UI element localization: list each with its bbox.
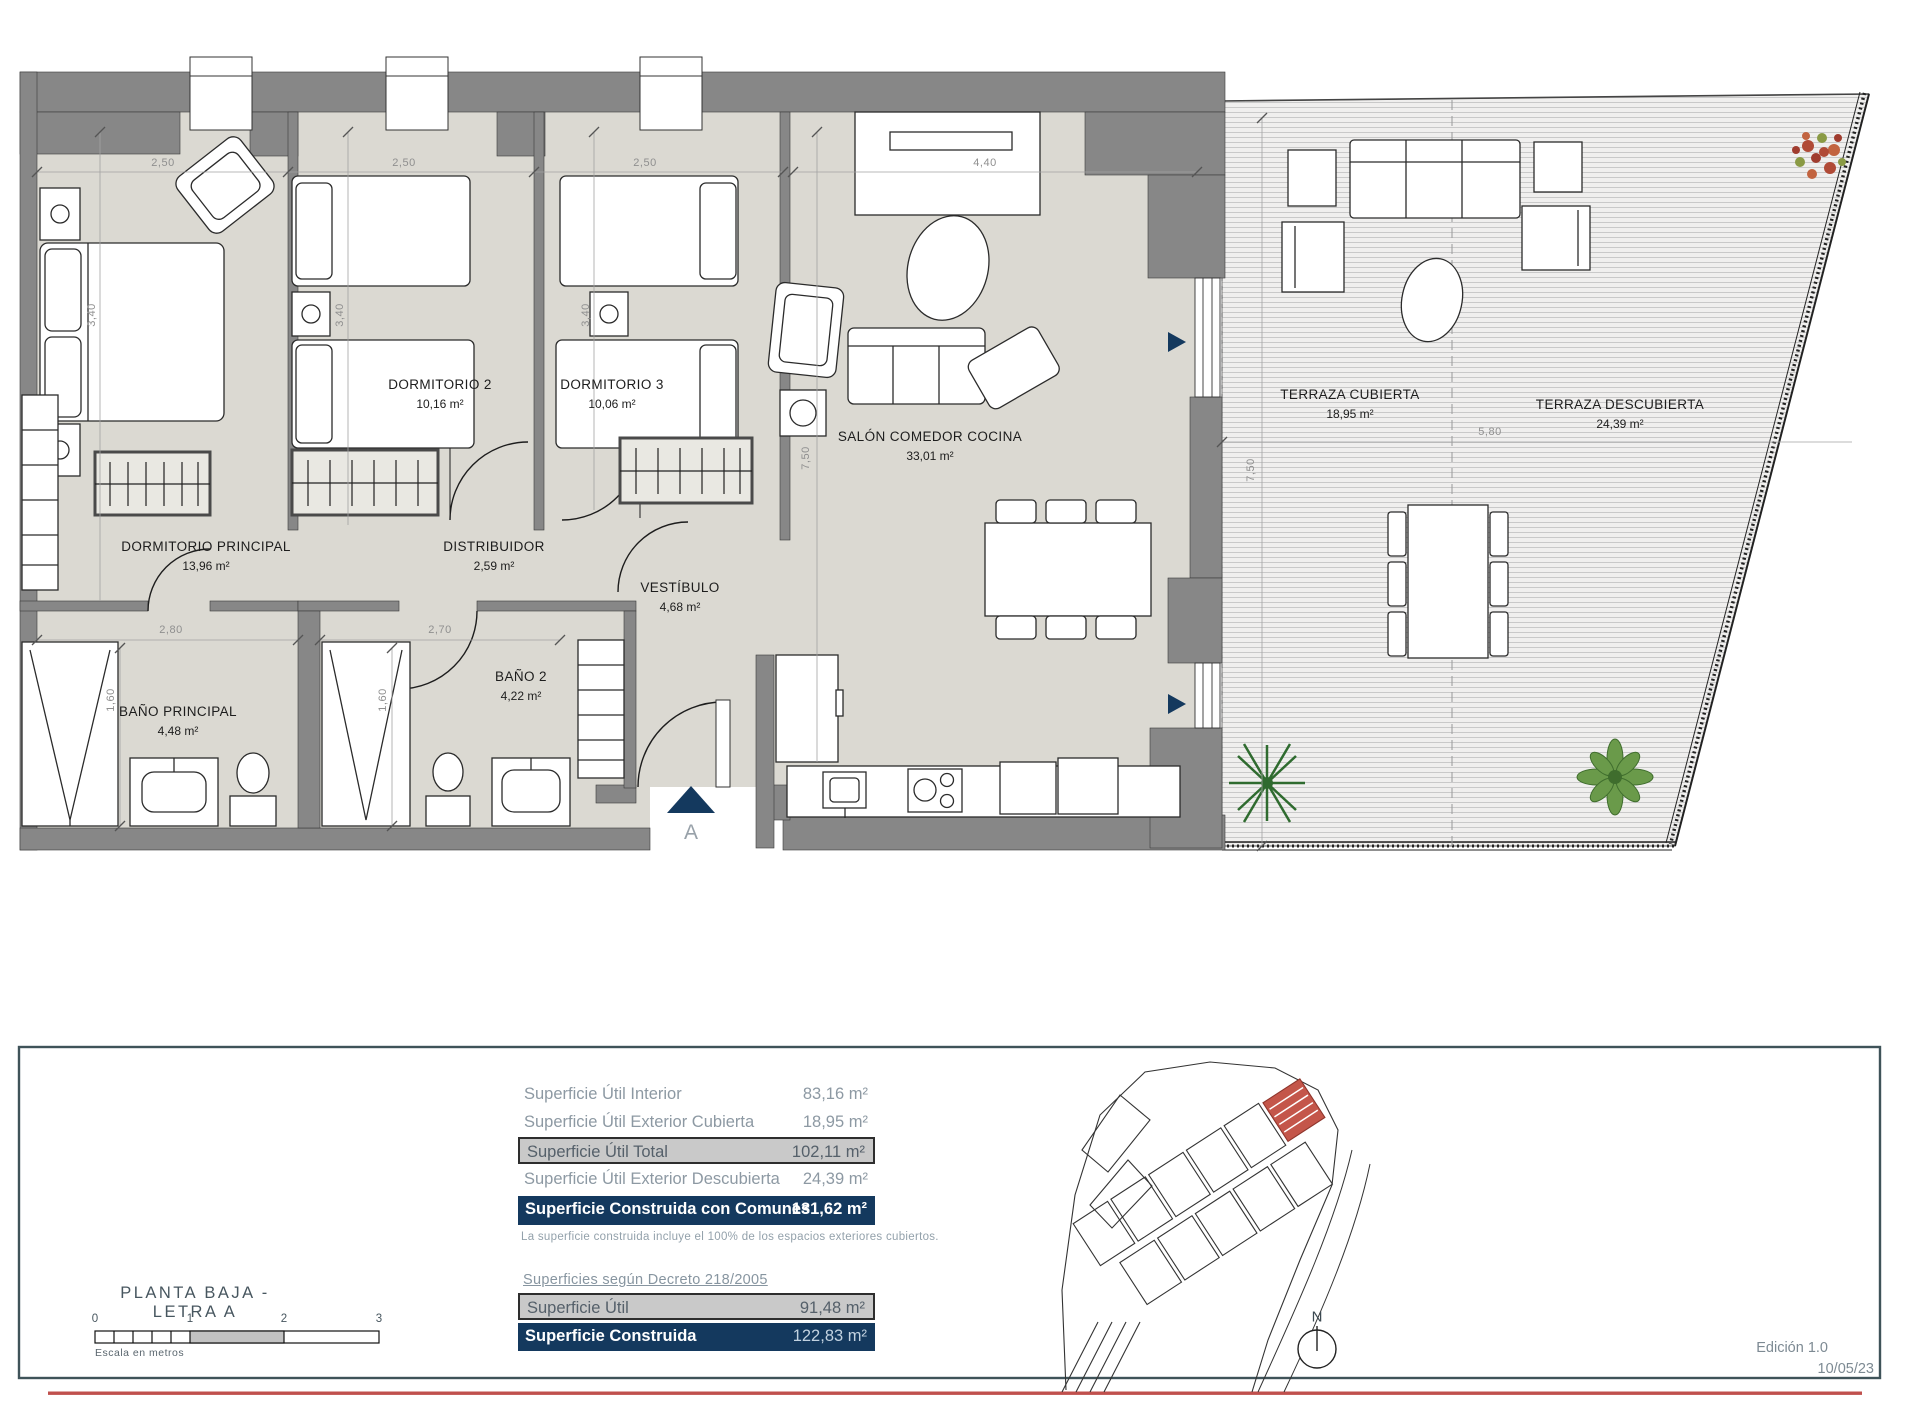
decree-row-util: Superficie Útil91,48 m²	[518, 1293, 875, 1320]
room-label-distribuidor: DISTRIBUIDOR2,59 m²	[443, 539, 545, 573]
room-label-terraza-cubierta: TERRAZA CUBIERTA18,95 m²	[1280, 387, 1419, 421]
room-label-dormitorio-2: DORMITORIO 210,16 m²	[388, 377, 492, 411]
date-label: 10/05/23	[1674, 1361, 1874, 1377]
dim-label: 5,80	[1478, 426, 1501, 438]
edition-label: Edición 1.0	[1628, 1340, 1828, 1356]
scale-tick-label: 0	[83, 1313, 107, 1325]
dim-label: 3,40	[334, 303, 346, 326]
dim-label: 2,50	[392, 157, 415, 169]
room-label-bano-principal: BAÑO PRINCIPAL4,48 m²	[119, 704, 237, 738]
room-label-terraza-descubierta: TERRAZA DESCUBIERTA24,39 m²	[1536, 397, 1704, 431]
room-label-dormitorio-3: DORMITORIO 310,06 m²	[560, 377, 664, 411]
scale-caption: Escala en metros	[95, 1347, 184, 1359]
dim-label: 2,70	[428, 624, 451, 636]
dim-label: 1,60	[377, 688, 389, 711]
area-row-util-exterior-descubierta: Superficie Útil Exterior Descubierta24,3…	[524, 1170, 868, 1192]
scale-tick-label: 3	[367, 1313, 391, 1325]
scale-tick-label: 1	[178, 1313, 202, 1325]
area-row-util-interior: Superficie Útil Interior83,16 m²	[524, 1085, 868, 1107]
dim-label: 7,50	[1245, 458, 1257, 481]
dim-label: 3,40	[580, 303, 592, 326]
dim-label: 4,40	[973, 157, 996, 169]
entrance-label: A	[684, 821, 698, 845]
area-row-util-total: Superficie Útil Total102,11 m²	[518, 1137, 875, 1164]
room-label-dormitorio-principal: DORMITORIO PRINCIPAL13,96 m²	[121, 539, 291, 573]
room-label-bano-2: BAÑO 24,22 m²	[495, 669, 547, 703]
floor-plan-drawing	[0, 0, 1919, 1402]
decree-heading: Superficies según Decreto 218/2005	[523, 1272, 768, 1288]
entrance-marker-icon	[667, 786, 715, 813]
dim-label: 3,40	[86, 303, 98, 326]
area-row-util-exterior-cubierta: Superficie Útil Exterior Cubierta18,95 m…	[524, 1113, 868, 1135]
scale-tick-label: 2	[272, 1313, 296, 1325]
dim-label: 7,50	[800, 446, 812, 469]
dim-label: 2,50	[151, 157, 174, 169]
room-label-salon-comedor-cocina: SALÓN COMEDOR COCINA33,01 m²	[838, 429, 1022, 463]
dim-label: 2,80	[159, 624, 182, 636]
dim-label: 1,60	[105, 688, 117, 711]
decree-row-construida: Superficie Construida122,83 m²	[518, 1323, 875, 1351]
area-note: La superficie construida incluye el 100%…	[521, 1231, 939, 1243]
plan-sheet: DORMITORIO PRINCIPAL13,96 m² DORMITORIO …	[0, 0, 1919, 1402]
dim-label: 2,50	[633, 157, 656, 169]
area-row-construida-comunes: Superficie Construida con Comunes131,62 …	[518, 1196, 875, 1225]
room-label-vestibulo: VESTÍBULO4,68 m²	[640, 580, 719, 614]
north-label: N	[1312, 1309, 1323, 1326]
scale-bar	[95, 1331, 379, 1343]
